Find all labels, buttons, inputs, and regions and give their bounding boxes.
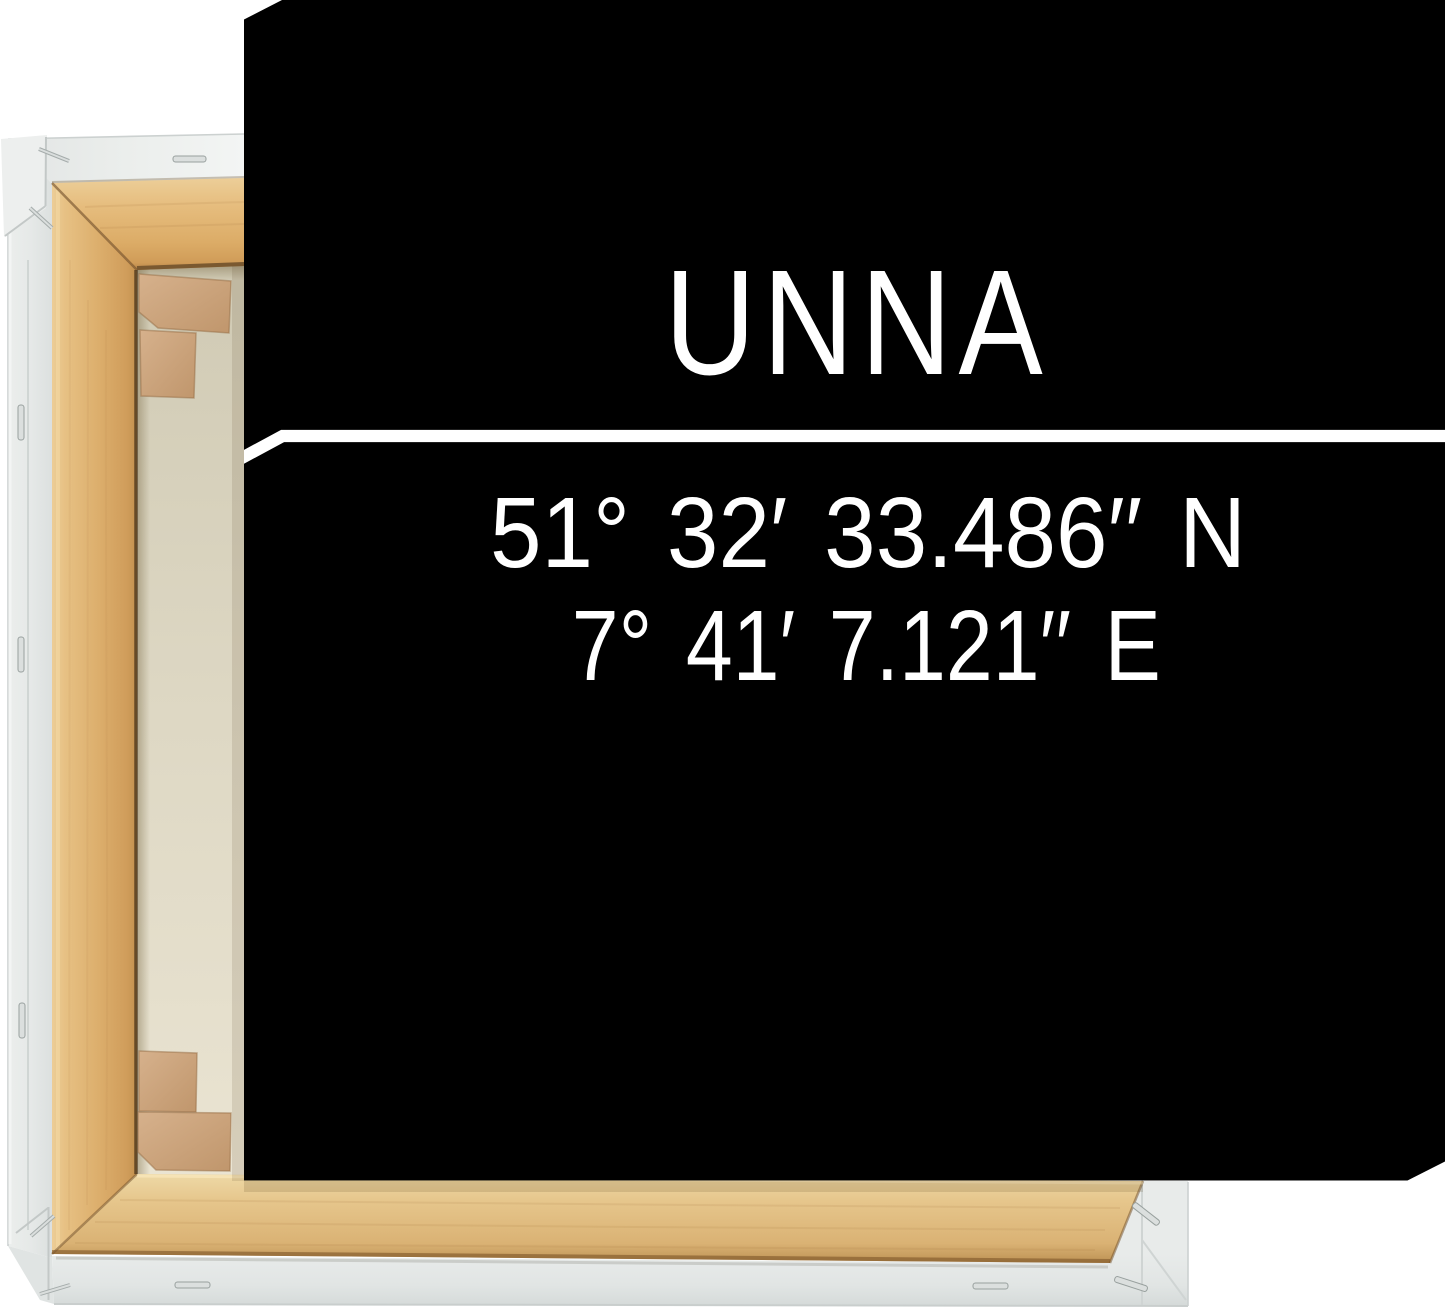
svg-text:UNNA: UNNA [665, 238, 1050, 406]
svg-text:7° 41′ 7.121′′ E: 7° 41′ 7.121′′ E [572, 590, 1161, 702]
svg-text:51° 32′ 33.486′′ N: 51° 32′ 33.486′′ N [490, 477, 1246, 589]
